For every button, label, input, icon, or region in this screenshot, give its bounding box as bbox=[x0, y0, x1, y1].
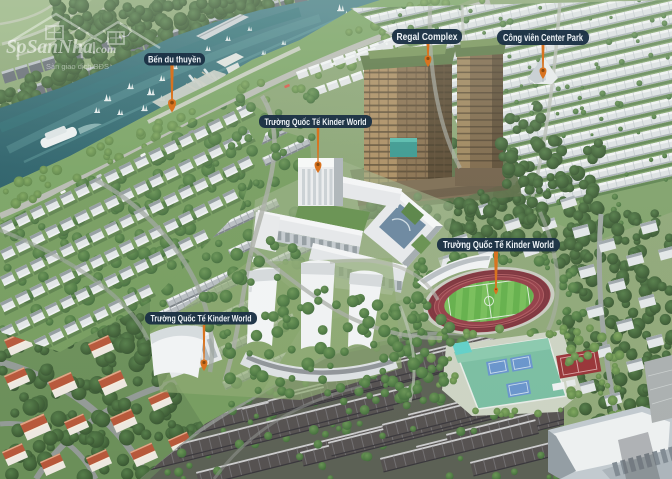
svg-text:Trường Quốc Tế Kinder World: Trường Quốc Tế Kinder World bbox=[265, 117, 367, 127]
svg-text:Công viên Center Park: Công viên Center Park bbox=[503, 33, 583, 44]
svg-text:Trường Quốc Tế Kinder World: Trường Quốc Tế Kinder World bbox=[151, 314, 252, 324]
svg-text:Trường Quốc Tế Kinder World: Trường Quốc Tế Kinder World bbox=[443, 240, 554, 251]
svg-text:Regal Complex: Regal Complex bbox=[397, 32, 458, 43]
svg-text:Bến du thuyền: Bến du thuyền bbox=[148, 55, 201, 65]
svg-text:Sàn giao dịch BĐS: Sàn giao dịch BĐS bbox=[46, 62, 109, 71]
